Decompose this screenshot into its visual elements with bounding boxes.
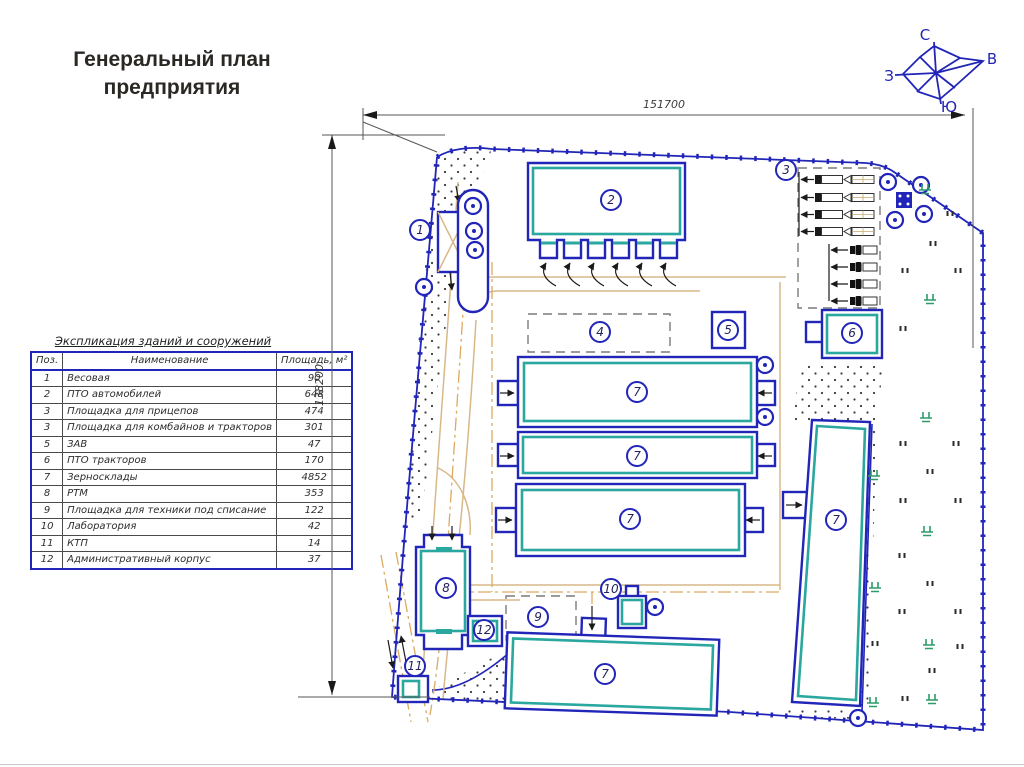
slide: Генеральный план предприятия Экспликация… — [0, 0, 1024, 767]
compass-west: З — [884, 67, 894, 85]
building-label-7a: 7 — [627, 382, 647, 402]
tree-island — [458, 190, 488, 312]
building-7-zernosklad-5 — [783, 420, 870, 706]
svg-text:7: 7 — [626, 512, 634, 526]
svg-text:5: 5 — [724, 323, 732, 337]
svg-text:138200: 138200 — [313, 364, 326, 406]
svg-text:2: 2 — [607, 193, 615, 207]
compass-south: Ю — [941, 98, 957, 116]
bay-entry-arrows — [544, 263, 676, 286]
svg-text:7: 7 — [633, 449, 641, 463]
compass-rose: С В З Ю — [884, 26, 997, 116]
building-7-zernosklad-4 — [505, 615, 720, 715]
building-label-4: 4 — [590, 322, 610, 342]
svg-text:8: 8 — [442, 581, 450, 595]
building-label-7e: 7 — [826, 510, 846, 530]
building-label-3: 3 — [776, 160, 796, 180]
svg-text:7: 7 — [601, 667, 609, 681]
svg-text:1: 1 — [416, 223, 424, 237]
svg-text:10: 10 — [603, 582, 619, 596]
svg-text:12: 12 — [476, 623, 491, 637]
slide-edge — [0, 764, 1024, 765]
parking-area-vehicles — [799, 172, 877, 306]
building-label-1: 1 — [410, 220, 430, 240]
svg-text:3: 3 — [782, 163, 790, 177]
svg-text:11: 11 — [407, 659, 422, 673]
svg-text:7: 7 — [633, 385, 641, 399]
compass-north: С — [920, 26, 930, 44]
building-label-11: 11 — [405, 656, 425, 676]
site-plan: 1 2 3 4 5 6 7 7 7 7 7 8 9 10 11 12 15170… — [0, 0, 1024, 767]
building-label-8: 8 — [436, 578, 456, 598]
building-2-pto-avtomobiley — [528, 163, 685, 286]
water-tower-cluster — [880, 174, 932, 228]
building-label-7c: 7 — [620, 509, 640, 529]
svg-text:7: 7 — [832, 513, 840, 527]
building-label-12: 12 — [474, 620, 494, 640]
building-label-9: 9 — [528, 607, 548, 627]
svg-text:4: 4 — [596, 325, 604, 339]
building-label-7d: 7 — [595, 664, 615, 684]
svg-text:6: 6 — [848, 326, 856, 340]
building-label-2: 2 — [601, 190, 621, 210]
compass-east: В — [987, 50, 997, 68]
building-label-7b: 7 — [627, 446, 647, 466]
vegetation-symbols — [867, 184, 963, 707]
svg-text:9: 9 — [534, 610, 542, 624]
building-label-10: 10 — [601, 579, 621, 599]
svg-text:151700: 151700 — [643, 98, 685, 111]
building-label-5: 5 — [718, 320, 738, 340]
building-label-6: 6 — [842, 323, 862, 343]
